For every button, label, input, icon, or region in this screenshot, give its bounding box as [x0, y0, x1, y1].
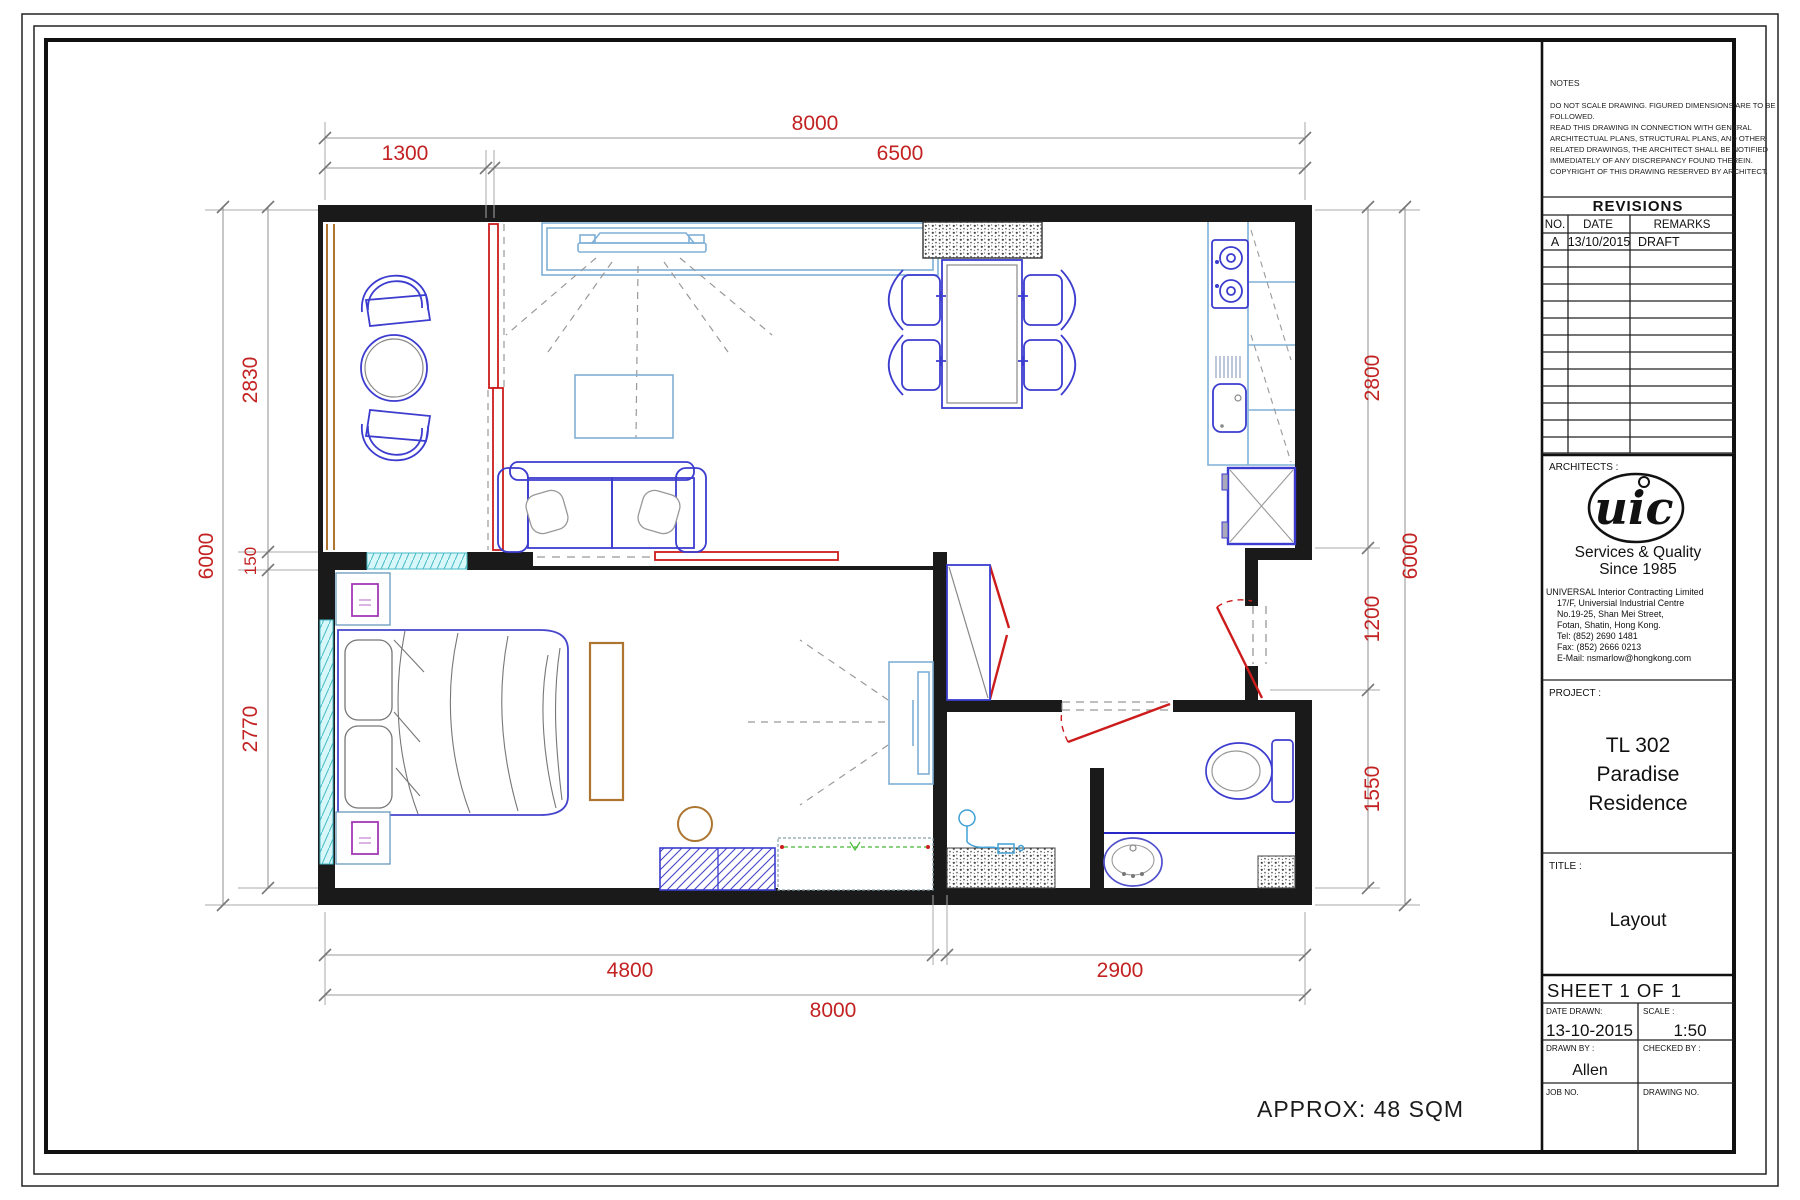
revision-row: A 13/10/2015 DRAFT: [1551, 235, 1680, 249]
wall-mid-seg1: [318, 552, 367, 570]
bedroom-window: [320, 620, 333, 864]
bed: [338, 630, 568, 815]
project-name-line: Residence: [1588, 792, 1687, 815]
bedroom-tv: [745, 640, 933, 805]
stove: [1212, 240, 1248, 308]
architects-address: Fax: (852) 2666 0213: [1557, 642, 1641, 652]
scale-value: 1:50: [1673, 1021, 1706, 1040]
architects-address: UNIVERSAL Interior Contracting Limited: [1546, 587, 1704, 597]
wall-balcony-left: [318, 205, 323, 552]
bedroom-slider-leaf: [655, 552, 838, 560]
revision-remarks: DRAFT: [1638, 235, 1680, 249]
wall-bath-top-right: [1173, 700, 1312, 712]
architects-address: Fotan, Shatin, Hong Kong.: [1557, 620, 1661, 630]
revisions-title: REVISIONS: [1593, 198, 1684, 215]
date-drawn-label: DATE DRAWN:: [1546, 1007, 1602, 1016]
notes-line: DO NOT SCALE DRAWING. FIGURED DIMENSIONS…: [1550, 101, 1775, 110]
checked-by-label: CHECKED BY :: [1643, 1044, 1701, 1053]
corridor: [947, 565, 990, 700]
shower-floor-hatch: [947, 848, 1055, 888]
tv-screen: [592, 233, 694, 243]
sofa-pillow-left: [523, 488, 571, 537]
wall-shower-partition: [1090, 768, 1104, 888]
dining-chairs: [889, 270, 1076, 395]
kitchen: [1208, 222, 1295, 544]
coffee-table: [575, 375, 673, 438]
shower-mixer: [959, 810, 1024, 853]
sofa: [498, 462, 706, 552]
dim-bottom-bedroom: 4800: [607, 959, 654, 982]
kitchen-sink: [1213, 356, 1246, 432]
tv-view-lines: [506, 258, 772, 438]
date-drawn-value: 13-10-2015: [1546, 1021, 1633, 1040]
refrigerator: [1222, 468, 1295, 544]
dim-top-living: 6500: [877, 142, 924, 165]
wall-mid-seg2: [467, 552, 533, 570]
nightstand-bottom: [336, 812, 390, 864]
dim-right-kitchen: 2800: [1361, 355, 1384, 402]
architects-address: No.19-25, Shan Mei Street,: [1557, 609, 1664, 619]
drawing-no-label: DRAWING NO.: [1643, 1088, 1699, 1097]
uic-logo-text: uic: [1595, 481, 1674, 535]
architects-address: E-Mail: nsmarlow@hongkong.com: [1557, 653, 1691, 663]
balcony-table: [361, 335, 427, 401]
bath-floor-hatch: [1258, 856, 1295, 888]
wall-mid-sill: [533, 566, 933, 570]
drawn-by-label: DRAWN BY :: [1546, 1044, 1594, 1053]
title-block: NOTES DO NOT SCALE DRAWING. FIGURED DIME…: [1542, 40, 1775, 1152]
notes-line: RELATED DRAWINGS, THE ARCHITECT SHALL BE…: [1550, 145, 1769, 154]
bedroom-balcony-window: [367, 553, 467, 569]
architects-address: 17/F, Universial Industrial Centre: [1557, 598, 1684, 608]
wall-top: [318, 205, 1312, 222]
dining-table: [942, 260, 1022, 408]
drawn-by-value: Allen: [1572, 1062, 1608, 1079]
architects-address: Tel: (852) 2690 1481: [1557, 631, 1638, 641]
notes-label: NOTES: [1550, 78, 1580, 88]
wall-right-upper: [1295, 205, 1312, 560]
balcony-slider-leaf1: [489, 224, 498, 388]
balcony-furniture: [361, 276, 430, 461]
dim-left-lower: 2770: [239, 706, 262, 753]
ac-ledge-hatch: [923, 222, 1042, 258]
dim-top-overall: 8000: [792, 112, 839, 135]
revisions-col-date: DATE: [1583, 219, 1613, 231]
page-borders: [22, 14, 1778, 1186]
job-no-label: JOB NO.: [1546, 1088, 1579, 1097]
closet-bifold-door: [990, 566, 1009, 699]
architects-label: ARCHITECTS :: [1549, 462, 1618, 473]
balcony-chair-bottom: [362, 410, 430, 460]
dim-left-upper: 2830: [239, 357, 262, 404]
title-label: TITLE :: [1549, 861, 1582, 872]
tv-base: [578, 243, 706, 252]
living-room-furniture: [498, 223, 938, 552]
title-value: Layout: [1609, 910, 1667, 931]
revision-date: 13/10/2015: [1568, 235, 1631, 249]
notes-line: ARCHITECTUAL PLANS, STRUCTURAL PLANS, AN…: [1550, 134, 1766, 143]
bathroom: [947, 740, 1295, 888]
wall-bath-top-left: [947, 700, 1062, 712]
notes-line: IMMEDIATELY OF ANY DISCREPANCY FOUND THE…: [1550, 156, 1753, 165]
dim-bottom-overall: 8000: [810, 999, 857, 1022]
stool: [678, 807, 712, 841]
architects-block: ARCHITECTS : uic Services & Quality Sinc…: [1542, 455, 1734, 663]
basin-sink: [1104, 838, 1162, 886]
entrance-door-leaf: [1217, 607, 1262, 698]
entrance-opening: [1253, 606, 1266, 664]
pillow-top: [345, 640, 392, 720]
dim-top-balcony: 1300: [382, 142, 429, 165]
dim-left-overall: 6000: [195, 533, 218, 580]
notes-line: COPYRIGHT OF THIS DRAWING RESERVED BY AR…: [1550, 167, 1768, 176]
dim-right-entry: 1200: [1361, 596, 1384, 643]
dim-right-overall: 6000: [1399, 533, 1422, 580]
tv-console: [542, 223, 938, 275]
wardrobe: [660, 848, 775, 890]
title-section: TITLE : Layout: [1542, 853, 1734, 931]
wall-entry-jamb-top: [1245, 548, 1258, 606]
revision-no: A: [1551, 235, 1560, 249]
wall-bedroom-corridor: [933, 552, 947, 888]
dining-set: [889, 222, 1076, 408]
wall-right-lower: [1295, 712, 1312, 905]
project-label: PROJECT :: [1549, 688, 1601, 699]
bed-bench: [590, 643, 623, 800]
revisions-col-remarks: REMARKS: [1654, 219, 1711, 231]
dim-left-wall: 150: [241, 547, 260, 575]
bedroom-furniture: [336, 573, 933, 890]
pillow-bottom: [345, 726, 392, 808]
drawing-sheet: 8000 1300 6500 6000 2830 150 2770 2800 1…: [0, 0, 1800, 1200]
dim-right-bath: 1550: [1361, 766, 1384, 813]
sheet-fields: SHEET 1 OF 1 DATE DRAWN: 13-10-2015 SCAL…: [1542, 975, 1734, 1152]
balcony-chair-top: [362, 276, 430, 326]
kitchen-cabinet-hatch: [1251, 230, 1291, 462]
nightstand-top: [336, 573, 390, 625]
dim-bottom-bath: 2900: [1097, 959, 1144, 982]
toilet: [1206, 740, 1293, 802]
architects-tagline2: Since 1985: [1599, 561, 1677, 578]
project-block: PROJECT : TL 302 Paradise Residence: [1542, 680, 1734, 815]
notes-line: READ THIS DRAWING IN CONNECTION WITH GEN…: [1550, 123, 1752, 132]
revisions-col-no: NO.: [1545, 219, 1565, 231]
project-name-line: TL 302: [1606, 734, 1671, 757]
project-name-line: Paradise: [1597, 763, 1680, 786]
uic-logo: uic: [1589, 474, 1683, 542]
revisions-table: REVISIONS NO. DATE REMARKS A 13/10/2015 …: [1542, 197, 1734, 453]
bathroom-door-swing: [1061, 712, 1068, 742]
architects-tagline1: Services & Quality: [1575, 544, 1702, 561]
notes-line: FOLLOWED.: [1550, 112, 1595, 121]
scale-label: SCALE :: [1643, 1007, 1674, 1016]
approx-area-label: APPROX: 48 SQM: [1257, 1096, 1464, 1122]
kitchen-counter: [1208, 222, 1295, 465]
floor-plan-svg: 8000 1300 6500 6000 2830 150 2770 2800 1…: [0, 0, 1800, 1200]
dresser: [778, 838, 933, 890]
sheet-number: SHEET 1 OF 1: [1547, 980, 1682, 1001]
